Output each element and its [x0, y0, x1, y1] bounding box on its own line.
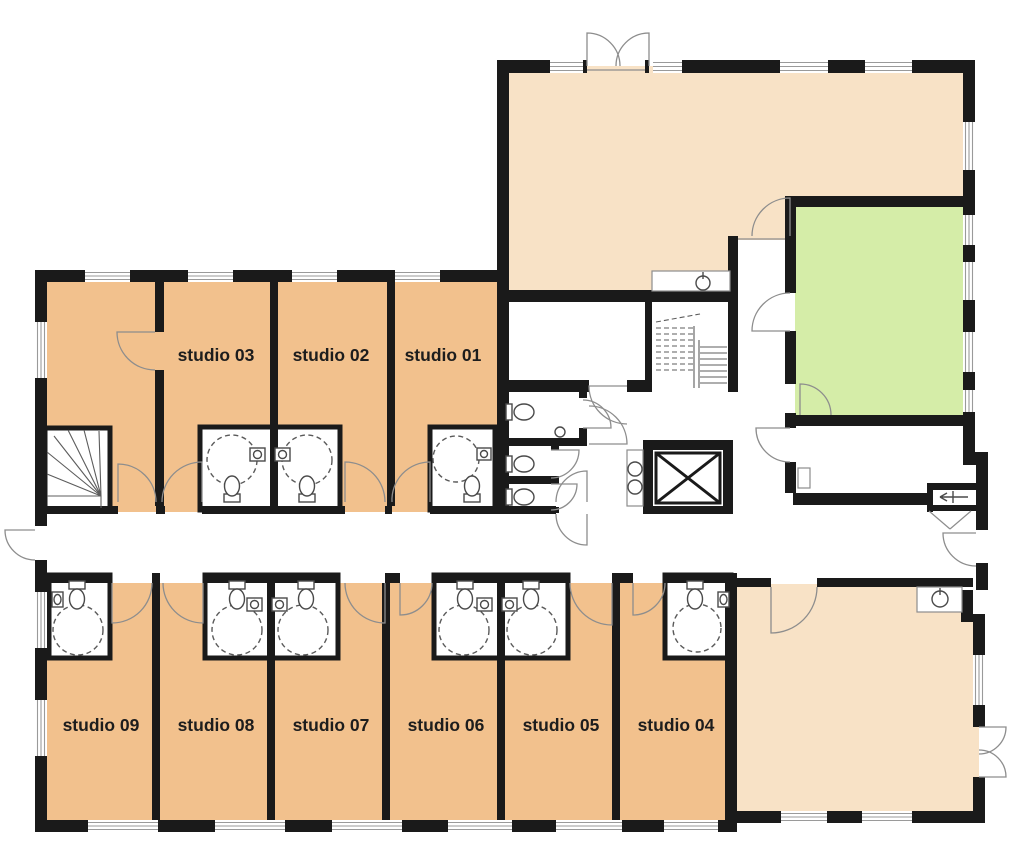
window — [35, 700, 47, 756]
sink-icon — [718, 592, 729, 607]
window — [973, 655, 985, 705]
window — [963, 262, 975, 300]
window — [556, 820, 622, 832]
room-label-studio-09: studio 09 — [63, 715, 140, 735]
stairs-main — [656, 314, 727, 388]
window — [781, 811, 827, 823]
room-label-studio-04: studio 04 — [638, 715, 715, 735]
toilet-icon — [457, 581, 473, 609]
window — [653, 60, 682, 73]
cabinet — [798, 468, 810, 488]
sink-icon — [917, 587, 962, 612]
sink-icon — [52, 592, 63, 607]
window — [963, 122, 975, 170]
sink-icon — [477, 448, 491, 460]
room-label-studio-07: studio 07 — [293, 715, 370, 735]
door-wc-lobby-b — [556, 514, 587, 545]
room-label-studio-08: studio 08 — [178, 715, 255, 735]
sink-icon — [555, 427, 565, 437]
window — [215, 820, 285, 832]
toilet-icon — [224, 476, 240, 502]
double-sink-icon — [627, 450, 643, 506]
room-label-studio-06: studio 06 — [408, 715, 485, 735]
kitchen-sink-icon — [652, 271, 730, 291]
window — [963, 332, 975, 372]
toilet-icon — [299, 476, 315, 502]
window — [780, 60, 828, 73]
toilet-icon — [506, 456, 534, 472]
double-door-top-right-leaf — [616, 33, 649, 66]
toilet-icon — [464, 476, 480, 502]
room-label-studio-01: studio 01 — [405, 345, 482, 365]
door-wc1 — [583, 400, 611, 428]
door-corridor-left-exit — [5, 530, 35, 560]
window — [88, 820, 158, 832]
room-label-studio-02: studio 02 — [293, 345, 370, 365]
floor-plan-page: studio 01 studio 02 studio 03 studio 04 … — [0, 0, 1024, 864]
door-corridor-right — [943, 533, 976, 566]
door-green-room-upper — [752, 293, 790, 331]
double-door-top-left-leaf — [587, 33, 620, 66]
window — [664, 820, 718, 832]
window — [448, 820, 512, 832]
toilet-icon — [523, 581, 539, 609]
window — [35, 592, 47, 648]
room-green — [795, 206, 963, 419]
window — [865, 60, 912, 73]
floor-plan: studio 01 studio 02 studio 03 studio 04 … — [0, 0, 1024, 864]
window — [188, 270, 233, 282]
toilet-icon — [687, 581, 703, 609]
window — [395, 270, 440, 282]
window — [963, 390, 975, 412]
window — [85, 270, 130, 282]
toilet-icon — [506, 489, 534, 505]
toilet-icon — [298, 581, 314, 609]
window — [292, 270, 337, 282]
window — [332, 820, 402, 832]
room-label-studio-05: studio 05 — [523, 715, 600, 735]
room-common-bottom-right — [737, 584, 979, 817]
toilet-icon — [229, 581, 245, 609]
elevator-icon — [656, 453, 720, 503]
toilet-icon — [506, 404, 534, 420]
door-wc-lobby-a — [556, 471, 587, 502]
window — [963, 215, 975, 245]
room-label-studio-03: studio 03 — [178, 345, 255, 365]
door-hall-to-entrance-room — [756, 428, 790, 462]
door-lobby-swing-a — [589, 386, 627, 424]
toilet-icon — [69, 581, 85, 609]
bathroom-studio-01 — [430, 427, 495, 510]
left-exit-door-gap — [35, 526, 47, 560]
door-lobby-swing-b — [589, 406, 627, 444]
window — [35, 322, 47, 378]
window — [862, 811, 912, 823]
window — [550, 60, 583, 73]
